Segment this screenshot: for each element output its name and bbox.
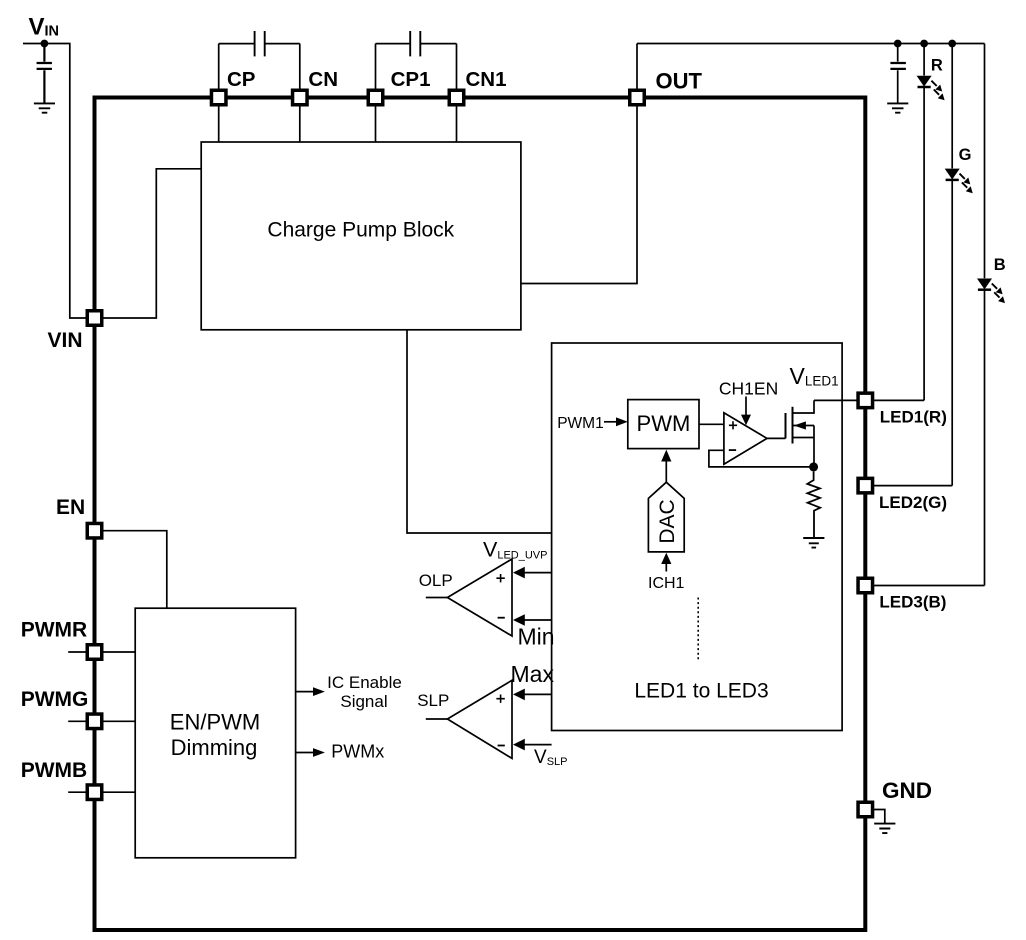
svg-text:PWMR: PWMR bbox=[21, 619, 88, 642]
svg-text:CN: CN bbox=[308, 68, 338, 91]
svg-text:GND: GND bbox=[882, 778, 932, 803]
svg-text:Signal: Signal bbox=[340, 692, 387, 711]
svg-text:IC Enable: IC Enable bbox=[327, 673, 402, 692]
svg-text:CH1EN: CH1EN bbox=[719, 379, 778, 399]
svg-text:EN: EN bbox=[56, 496, 85, 519]
svg-text:PWMx: PWMx bbox=[331, 742, 384, 762]
svg-text:OUT: OUT bbox=[656, 69, 703, 94]
svg-text:PWM: PWM bbox=[637, 411, 691, 436]
svg-text:Charge Pump Block: Charge Pump Block bbox=[267, 219, 454, 242]
svg-text:B: B bbox=[994, 256, 1006, 274]
svg-text:PWMG: PWMG bbox=[21, 688, 89, 711]
svg-text:LED3(B): LED3(B) bbox=[879, 593, 946, 612]
svg-text:OLP: OLP bbox=[419, 571, 453, 590]
svg-text:CN1: CN1 bbox=[466, 68, 507, 91]
svg-text:VSLP: VSLP bbox=[534, 747, 567, 768]
svg-text:VLED1: VLED1 bbox=[790, 363, 839, 389]
svg-text:CP1: CP1 bbox=[391, 68, 431, 91]
svg-text:LED1(R): LED1(R) bbox=[880, 408, 947, 427]
svg-text:DAC: DAC bbox=[656, 499, 679, 543]
svg-text:LED1 to LED3: LED1 to LED3 bbox=[634, 680, 768, 703]
svg-text:R: R bbox=[931, 57, 943, 75]
svg-text:VIN: VIN bbox=[29, 13, 60, 40]
svg-text:PWMB: PWMB bbox=[21, 759, 88, 782]
svg-text:LED2(G): LED2(G) bbox=[879, 493, 947, 512]
svg-text:Dimming: Dimming bbox=[171, 735, 258, 760]
svg-text:CP: CP bbox=[227, 68, 255, 91]
svg-text:ICH1: ICH1 bbox=[648, 575, 685, 592]
svg-text:G: G bbox=[959, 146, 972, 164]
svg-text:PWM1: PWM1 bbox=[557, 415, 604, 432]
svg-text:Max: Max bbox=[511, 661, 555, 687]
svg-text:Min: Min bbox=[518, 624, 555, 650]
svg-text:EN/PWM: EN/PWM bbox=[170, 709, 260, 734]
svg-text:VIN: VIN bbox=[48, 329, 83, 352]
svg-text:VLED_UVP: VLED_UVP bbox=[483, 538, 547, 562]
svg-text:SLP: SLP bbox=[417, 691, 449, 710]
